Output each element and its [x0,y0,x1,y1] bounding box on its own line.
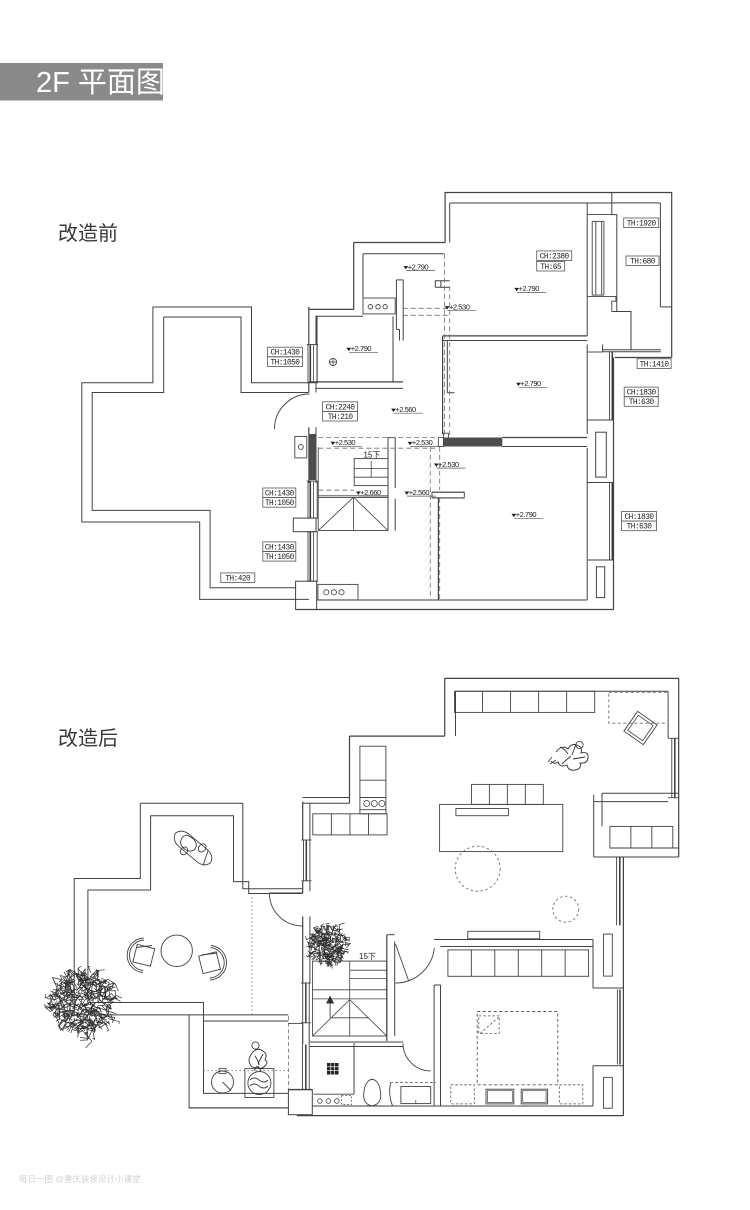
svg-text:+2.660: +2.660 [360,488,381,497]
svg-text:2F 平面图: 2F 平面图 [36,67,165,99]
svg-text:TH:630: TH:630 [629,399,655,407]
svg-text:+2.560: +2.560 [409,488,430,497]
svg-text:+2.530: +2.530 [335,438,356,447]
svg-text:TH:1920: TH:1920 [627,221,657,229]
svg-text:TH:630: TH:630 [627,524,653,532]
svg-text:TH:210: TH:210 [328,414,354,422]
svg-text:TH:420: TH:420 [225,575,251,583]
svg-text:+2.790: +2.790 [351,344,372,353]
svg-text:TH:1050: TH:1050 [270,359,300,367]
svg-text:+2.530: +2.530 [412,438,433,447]
svg-text:+2.560: +2.560 [395,405,416,414]
svg-text:+2.790: +2.790 [408,262,429,271]
svg-text:TH:1050: TH:1050 [265,554,295,562]
svg-text:每日一图 @重庆装修设计小课堂: 每日一图 @重庆装修设计小课堂 [19,1174,141,1184]
svg-text:改造前: 改造前 [58,222,118,245]
svg-text:TH:680: TH:680 [630,259,656,267]
svg-text:15下: 15下 [359,952,376,961]
svg-text:TH:1410: TH:1410 [640,361,670,369]
svg-text:CH:2380: CH:2380 [540,253,570,261]
svg-text:改造后: 改造后 [58,727,118,750]
svg-text:+2.790: +2.790 [516,510,537,519]
svg-text:+2.530: +2.530 [449,302,470,311]
svg-text:TH:65: TH:65 [540,264,562,272]
svg-text:TH:1050: TH:1050 [265,500,295,508]
svg-text:+2.530: +2.530 [438,460,459,469]
svg-text:+2.790: +2.790 [519,284,540,293]
svg-text:+2.790: +2.790 [520,379,541,388]
svg-text:15下: 15下 [364,451,381,460]
